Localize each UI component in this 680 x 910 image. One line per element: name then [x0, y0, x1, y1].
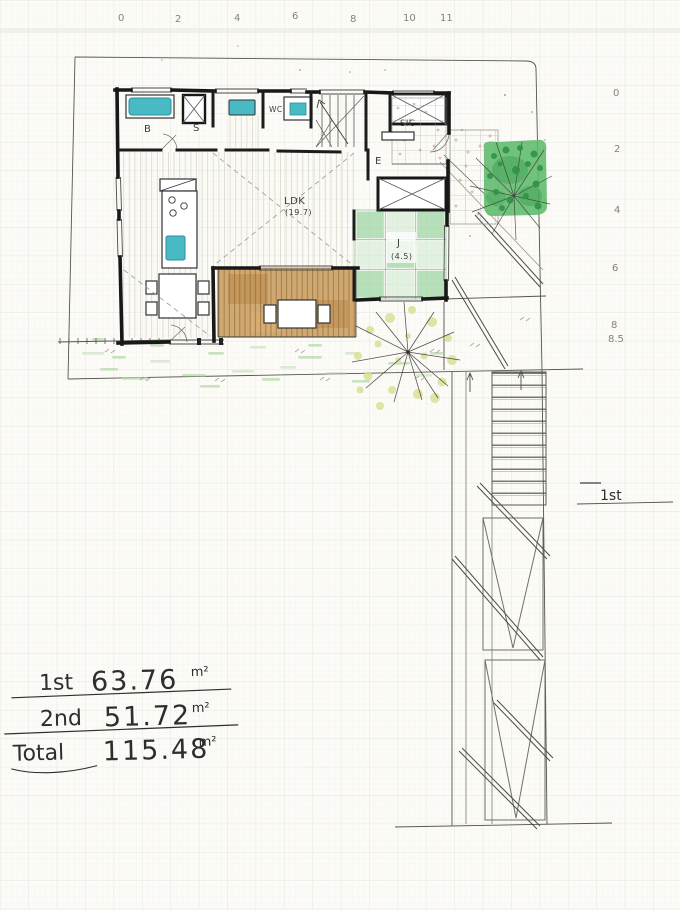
ruler-number: 2 [175, 14, 181, 25]
dining-chair [198, 302, 209, 315]
ruler-number: 10 [403, 13, 416, 24]
dining-chair [146, 302, 157, 315]
ruler-number: 6 [292, 11, 298, 22]
ruler-number: 11 [440, 13, 453, 24]
area-row-unit: m² [198, 734, 216, 749]
room-label-tatami: J [396, 238, 400, 249]
ruler-number: 8.5 [608, 334, 624, 345]
ruler-number: 6 [612, 263, 618, 274]
floor-plan-sketch: 0 2 4 6 8 10 11 0 2 4 6 8 8.5 [0, 0, 680, 910]
post [197, 338, 201, 345]
grid-major [0, 0, 680, 910]
area-row-value: 115.48 [102, 734, 209, 768]
room-label-storage: S [193, 123, 200, 134]
bathtub [129, 98, 171, 115]
scan-artifact-band [0, 29, 680, 33]
outdoor-chair [318, 305, 330, 323]
outdoor-table [278, 300, 316, 328]
ruler-number: 2 [614, 144, 620, 155]
kitchen-sink [166, 236, 185, 260]
exterior-steps [492, 372, 546, 505]
washroom-flooring [226, 116, 262, 148]
vanity-sink [229, 100, 255, 115]
area-row-label: 1st [39, 670, 74, 696]
ruler-number: 0 [613, 88, 619, 99]
wood-deck [218, 268, 356, 337]
room-label-wc: WC [269, 105, 283, 114]
area-row-label: 2nd [40, 706, 83, 732]
room-area-tatami: (4.5) [391, 252, 412, 261]
ruler-number: 0 [118, 13, 124, 24]
area-row-unit: m² [192, 701, 210, 716]
entry-bench [382, 132, 414, 140]
ruler-number: 4 [614, 205, 620, 216]
room-label-sic: SIC [400, 119, 415, 129]
post [219, 338, 223, 345]
dining-chair [198, 281, 209, 294]
room-label-entrance: E [375, 156, 382, 167]
room-label-ldk: LDK [284, 196, 305, 207]
area-row-label: Total [12, 740, 65, 766]
outdoor-chair [264, 305, 276, 323]
ruler-number: 8 [350, 14, 356, 25]
dining-chair [146, 281, 157, 294]
room-label-bath: B [144, 124, 151, 135]
ruler-number: 8 [611, 320, 617, 331]
wc-basin [290, 103, 306, 115]
area-row-unit: m² [191, 665, 209, 680]
ruler-number: 4 [234, 13, 240, 24]
graph-paper [0, 0, 680, 910]
room-area-ldk: (19.7) [285, 208, 312, 217]
floor-indicator-label: 1st [600, 488, 622, 504]
